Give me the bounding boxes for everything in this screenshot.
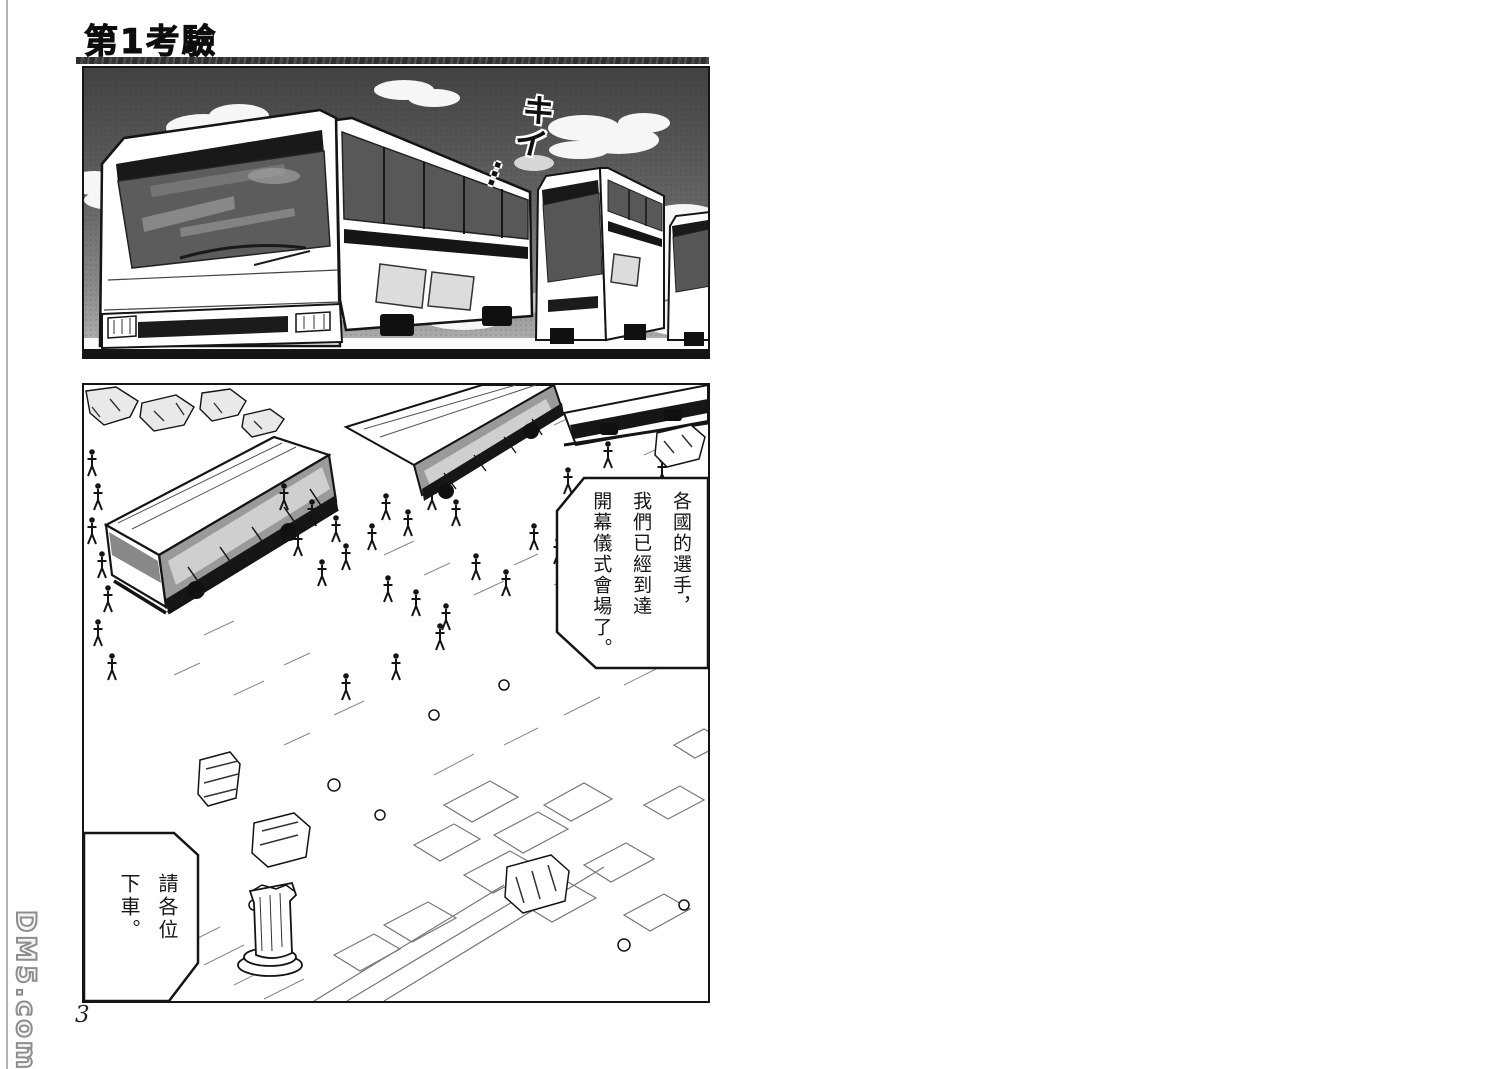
watermark-dm5: DM5.com xyxy=(10,910,41,1069)
manga-page: 第1考驗 xyxy=(0,0,1500,1069)
top-panel-art xyxy=(84,68,708,357)
chapter-title: 第1考驗 xyxy=(84,14,218,63)
bus-far xyxy=(668,212,708,346)
panel-plaza-overview: 各國的選手， 我們已經到達 開幕儀式會場了。 請各位 下車。 xyxy=(82,383,710,1003)
panel-buses-arriving: キイ … xyxy=(82,66,710,359)
dialogue-arrival: 各國的選手， 我們已經到達 開幕儀式會場了。 xyxy=(570,491,700,659)
dialogue-getoff: 請各位 下車。 xyxy=(120,873,186,991)
road-shadow xyxy=(84,349,708,357)
page-number: 3 xyxy=(75,1002,90,1028)
title-rule xyxy=(76,57,709,64)
page-edge-line xyxy=(6,0,8,1069)
bus-middle xyxy=(536,168,664,344)
